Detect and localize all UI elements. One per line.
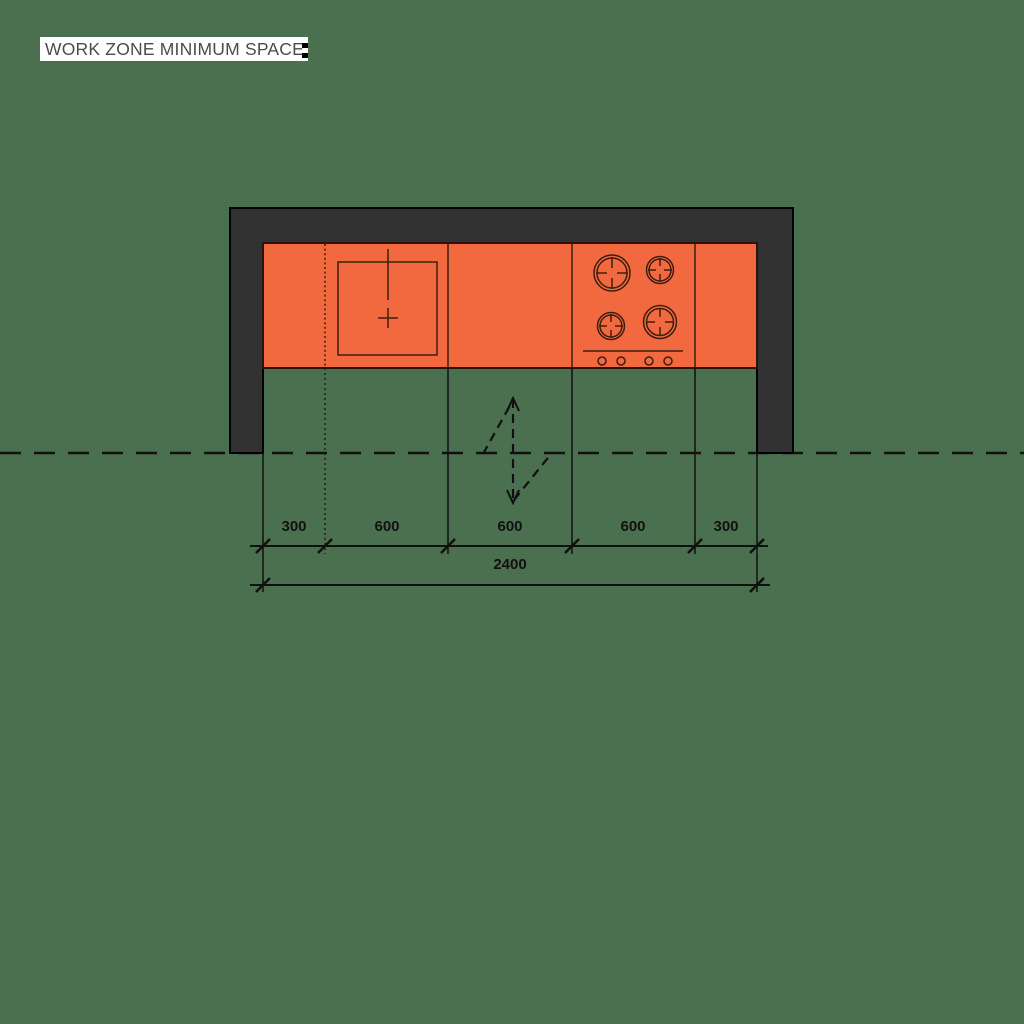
dim-label-total: 2400 [493, 556, 526, 573]
dim-label-segment-2: 600 [374, 518, 399, 535]
drawing-canvas: WORK ZONE MINIMUM SPACE [0, 0, 1024, 1024]
work-zone-swing-arrow-icon [483, 398, 551, 503]
dim-label-segment-3: 600 [497, 518, 522, 535]
work-zone-diagram [0, 0, 1024, 1024]
dim-label-segment-1: 300 [281, 518, 306, 535]
dim-label-segment-5: 300 [713, 518, 738, 535]
dim-label-segment-4: 600 [620, 518, 645, 535]
countertop [263, 243, 757, 368]
